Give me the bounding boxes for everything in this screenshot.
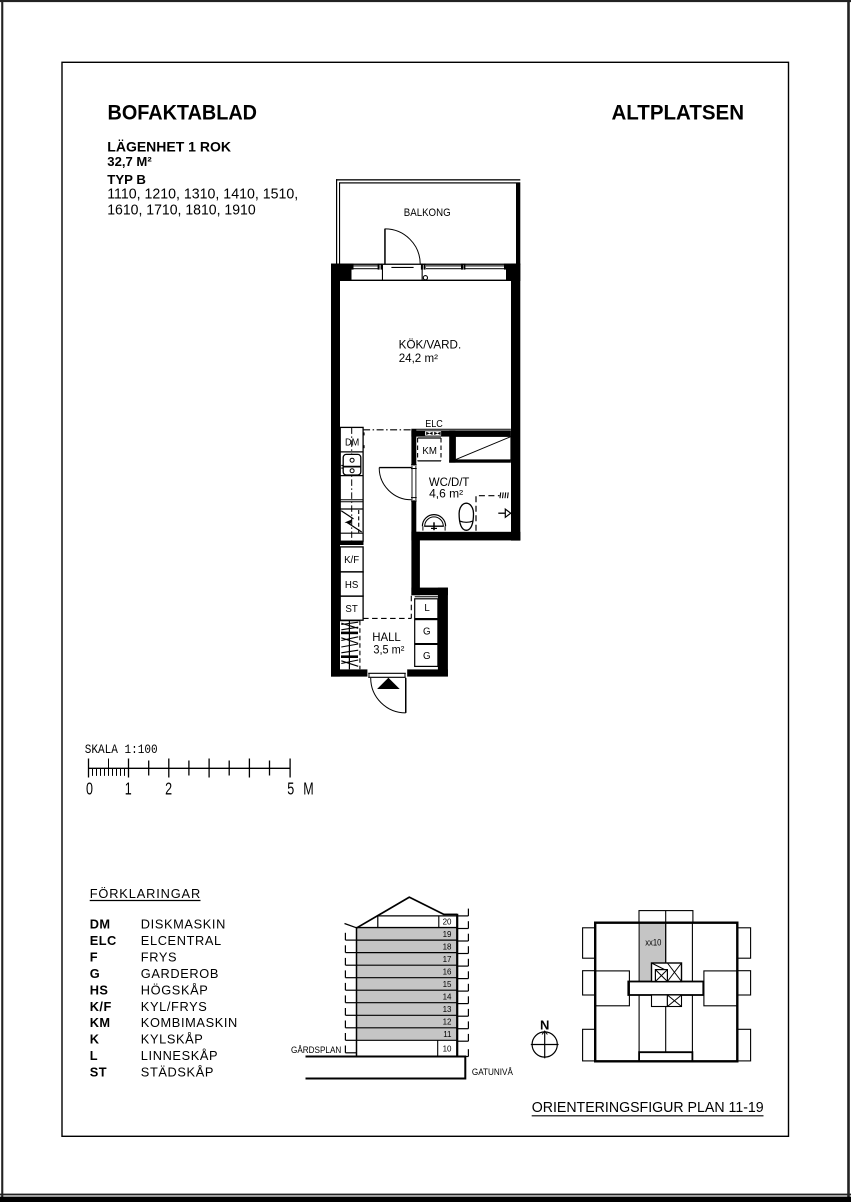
- svg-text:KYL/FRYS: KYL/FRYS: [141, 999, 208, 1014]
- svg-text:KÖK/VARD.: KÖK/VARD.: [399, 339, 462, 352]
- svg-text:2: 2: [165, 780, 172, 800]
- svg-text:GATUNIVÅ: GATUNIVÅ: [472, 1067, 513, 1077]
- svg-text:DISKMASKIN: DISKMASKIN: [141, 917, 226, 932]
- svg-text:DM: DM: [345, 437, 359, 448]
- svg-text:TYP B: TYP B: [107, 172, 146, 187]
- svg-text:14: 14: [443, 993, 452, 1002]
- svg-text:K/F: K/F: [90, 999, 112, 1014]
- svg-text:BOFAKTABLAD: BOFAKTABLAD: [108, 102, 258, 125]
- svg-text:KM: KM: [90, 1015, 111, 1030]
- svg-text:17: 17: [443, 955, 452, 964]
- svg-text:4,6 m²: 4,6 m²: [429, 488, 463, 501]
- svg-text:12: 12: [443, 1018, 452, 1027]
- svg-text:BALKONG: BALKONG: [404, 207, 451, 219]
- svg-text:ST: ST: [90, 1065, 107, 1080]
- svg-text:HÖGSKÅP: HÖGSKÅP: [141, 982, 209, 997]
- svg-text:ELC: ELC: [425, 419, 443, 430]
- svg-text:GARDEROB: GARDEROB: [141, 966, 219, 981]
- svg-text:K/F: K/F: [344, 555, 359, 566]
- svg-text:20: 20: [443, 917, 452, 926]
- svg-text:24,2 m²: 24,2 m²: [399, 352, 438, 365]
- svg-text:18: 18: [443, 942, 452, 951]
- svg-text:F: F: [90, 950, 98, 965]
- svg-text:11: 11: [443, 1030, 452, 1039]
- svg-text:32,7 M²: 32,7 M²: [107, 154, 152, 169]
- svg-text:1610, 1710, 1810, 1910: 1610, 1710, 1810, 1910: [107, 203, 256, 219]
- svg-text:M: M: [303, 780, 313, 800]
- svg-text:LÄGENHET 1 ROK: LÄGENHET 1 ROK: [107, 138, 231, 154]
- svg-text:N: N: [540, 1017, 549, 1032]
- svg-text:15: 15: [443, 980, 452, 989]
- svg-text:10: 10: [443, 1045, 452, 1054]
- svg-text:HS: HS: [345, 580, 359, 591]
- svg-text:FÖRKLARINGAR: FÖRKLARINGAR: [90, 886, 201, 901]
- svg-text:G: G: [423, 651, 431, 662]
- svg-text:GÅRDSPLAN: GÅRDSPLAN: [291, 1045, 341, 1055]
- svg-text:KM: KM: [422, 446, 437, 457]
- svg-text:G: G: [90, 966, 100, 981]
- svg-text:L: L: [424, 603, 430, 614]
- svg-text:SKALA 1:100: SKALA 1:100: [85, 742, 158, 757]
- svg-text:K: K: [90, 1032, 100, 1047]
- svg-text:ALTPLATSEN: ALTPLATSEN: [612, 102, 745, 125]
- svg-text:FRYS: FRYS: [141, 950, 177, 965]
- svg-text:1: 1: [125, 780, 132, 800]
- svg-text:KYLSKÅP: KYLSKÅP: [141, 1032, 204, 1047]
- svg-text:LINNESKÅP: LINNESKÅP: [141, 1048, 218, 1063]
- svg-text:xx10: xx10: [645, 937, 661, 947]
- svg-text:HALL: HALL: [372, 631, 401, 644]
- svg-text:HS: HS: [90, 982, 109, 997]
- svg-text:ELCENTRAL: ELCENTRAL: [141, 933, 222, 948]
- svg-text:0: 0: [86, 780, 93, 800]
- svg-text:DM: DM: [90, 917, 111, 932]
- svg-text:G: G: [423, 626, 431, 637]
- svg-text:ELC: ELC: [90, 933, 117, 948]
- svg-text:13: 13: [443, 1005, 452, 1014]
- svg-text:5: 5: [287, 780, 294, 800]
- svg-text:19: 19: [443, 930, 452, 939]
- svg-text:ST: ST: [345, 604, 357, 615]
- svg-text:KOMBIMASKIN: KOMBIMASKIN: [141, 1015, 238, 1030]
- svg-text:16: 16: [443, 968, 452, 977]
- svg-text:ORIENTERINGSFIGUR PLAN 11-19: ORIENTERINGSFIGUR PLAN 11-19: [532, 1099, 764, 1116]
- svg-text:3,5 m²: 3,5 m²: [373, 644, 404, 657]
- svg-text:STÄDSKÅP: STÄDSKÅP: [141, 1065, 214, 1080]
- svg-text:L: L: [90, 1048, 98, 1063]
- svg-text:1110, 1210, 1310, 1410, 1510,: 1110, 1210, 1310, 1410, 1510,: [107, 187, 298, 203]
